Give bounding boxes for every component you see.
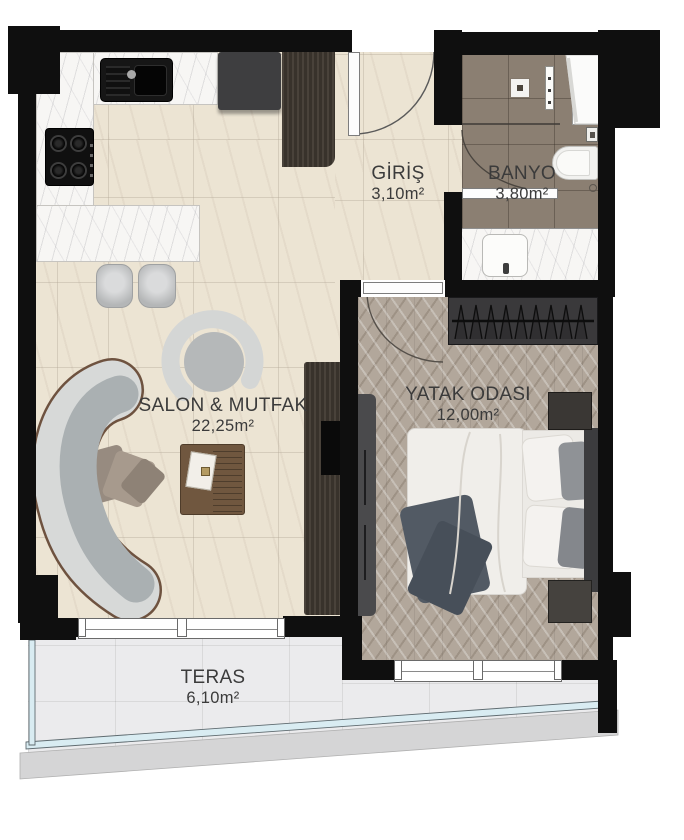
faucet-icon [503,263,509,274]
burner-icon [70,162,87,179]
wall-right-stub [613,572,631,637]
burner-icon [70,135,87,152]
burner-icon [50,135,67,152]
room-area: 12,00m² [437,406,500,424]
room-name: SALON & MUTFAK [139,396,308,417]
drain-center [517,85,523,91]
room-area: 6,10m² [186,689,239,707]
bedroom-window [394,660,562,682]
bar-stool [96,264,133,308]
wall-bedroom-bottom-right [560,660,613,680]
kitchen-sink [100,58,173,102]
utility-appliance [572,109,598,125]
burner-icon [50,162,67,179]
dresser-handle [364,450,366,505]
bar-stool [138,264,176,308]
wall-window-jamb-left [56,618,78,637]
shower-controls [548,72,551,104]
wall-bedroom-right [598,297,613,660]
room-name: GİRİŞ [371,164,424,185]
nightstand [548,580,592,623]
table-slats [213,448,242,512]
room-label-salon-mutfak: SALON & MUTFAK 22,25m² [123,396,323,435]
toilet-paper-holder-icon [586,127,598,142]
wardrobe [448,297,598,345]
bathroom-sink [482,234,528,277]
terrace-floor-right [342,680,598,740]
shower-drain [510,78,530,98]
shower-panel [545,66,554,110]
sink-drainboard [106,66,130,96]
room-name: TERAS [181,668,246,689]
living-room-window [78,618,285,639]
stove-knobs [90,139,93,177]
dresser-handle [364,525,366,580]
wall-bath-top [462,32,600,55]
wall-bedroom-bottom-left [342,660,394,680]
wall-top [18,30,352,52]
table-item [201,467,210,476]
sink-bowl [134,65,167,96]
room-area: 3,10m² [371,185,424,203]
wall-left [18,30,36,623]
refrigerator [218,52,281,110]
faucet-icon [127,70,136,79]
entry-door-leaf [348,52,360,136]
kitchen-peninsula-counter [36,205,200,262]
room-label-yatak-odasi: YATAK ODASI 12,00m² [368,385,568,424]
wall-entry-bath [434,30,462,125]
tv-panel [321,421,340,475]
coffee-table [180,444,245,515]
wall-corner-bottom-left-a [20,575,58,623]
entry-tall-cabinet [282,52,335,167]
room-name: YATAK ODASI [405,385,531,406]
bedroom-door-leaf [363,282,443,294]
room-label-teras: TERAS 6,10m² [133,668,293,707]
wall-living-bedroom-divider [340,280,358,630]
room-area: 3,80m² [495,185,548,203]
bedroom-dresser [356,394,376,616]
floor-plan: GİRİŞ 3,10m² BANYO 3,80m² SALON & MUTFAK… [0,0,684,840]
bed-headboard [584,428,598,592]
room-name: BANYO [488,164,556,185]
room-area: 22,25m² [192,417,255,435]
room-label-banyo: BANYO 3,80m² [442,164,602,203]
stove-cooktop [45,128,94,186]
